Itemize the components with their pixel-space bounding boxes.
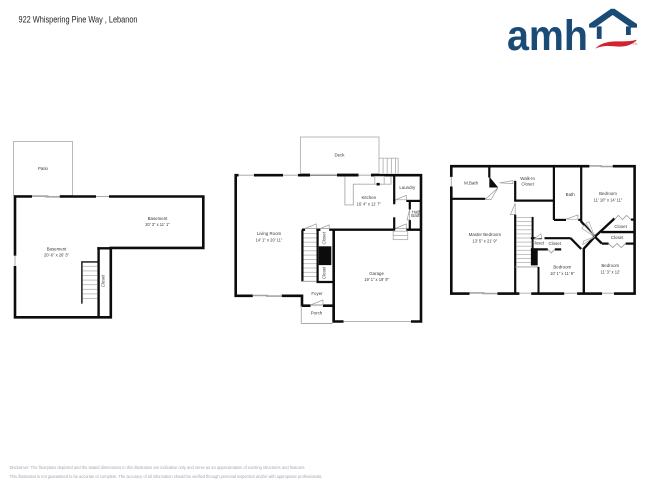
- svg-text:19' 1" x 19' 9": 19' 1" x 19' 9": [364, 277, 389, 282]
- svg-text:Closet: Closet: [614, 224, 627, 229]
- svg-text:Basement: Basement: [47, 247, 68, 252]
- svg-text:Master Bedroom: Master Bedroom: [469, 232, 502, 237]
- svg-text:14' 1" x 20' 11": 14' 1" x 20' 11": [256, 237, 283, 242]
- svg-text:Walk-In: Walk-In: [520, 176, 535, 181]
- svg-text:This illustration is not guara: This illustration is not guaranteed to b…: [10, 474, 323, 479]
- svg-text:Bath: Bath: [566, 192, 576, 197]
- svg-text:Basement: Basement: [148, 216, 169, 221]
- svg-text:Porch: Porch: [311, 311, 323, 316]
- svg-text:Laundry: Laundry: [399, 185, 416, 190]
- svg-text:Closet: Closet: [321, 231, 326, 244]
- svg-text:Disclaimer: The floorplans dep: Disclaimer: The floorplans depicted and …: [10, 465, 306, 470]
- svg-text:Closet: Closet: [548, 241, 561, 246]
- svg-text:20' 3" x 11' 1": 20' 3" x 11' 1": [145, 222, 170, 227]
- svg-text:Closet: Closet: [101, 274, 106, 287]
- svg-text:Living Room: Living Room: [257, 231, 282, 236]
- svg-text:Closet: Closet: [532, 241, 545, 246]
- svg-text:Bedroom: Bedroom: [599, 191, 617, 196]
- svg-text:Kitchen: Kitchen: [361, 195, 376, 200]
- svg-text:Closet: Closet: [521, 182, 534, 187]
- svg-text:Deck: Deck: [334, 153, 345, 158]
- svg-text:Bedroom: Bedroom: [601, 263, 619, 268]
- svg-text:M.Bath: M.Bath: [464, 181, 478, 186]
- svg-text:20'-6" x 26' 3": 20'-6" x 26' 3": [44, 253, 69, 258]
- svg-text:922 Whispering Pine Way , Leba: 922 Whispering Pine Way , Lebanon: [19, 14, 138, 24]
- svg-text:11' 3" x 12': 11' 3" x 12': [601, 269, 621, 274]
- svg-text:Bath: Bath: [411, 213, 421, 218]
- svg-text:Bedroom: Bedroom: [553, 265, 571, 270]
- svg-text:11' 10" x 14' 11": 11' 10" x 14' 11": [594, 197, 623, 202]
- svg-text:10' 1" x 11' 9": 10' 1" x 11' 9": [550, 271, 575, 276]
- svg-text:amh: amh: [507, 13, 588, 60]
- svg-text:Closet: Closet: [611, 235, 624, 240]
- svg-text:Closet: Closet: [321, 266, 326, 279]
- svg-text:Patio: Patio: [38, 166, 49, 171]
- svg-text:TM: TM: [633, 42, 638, 46]
- svg-text:Foyer: Foyer: [311, 291, 323, 296]
- svg-text:16' 4" x 11' 7": 16' 4" x 11' 7": [357, 201, 382, 206]
- svg-text:Garage: Garage: [369, 271, 384, 276]
- svg-text:13' 5" x 21' 9": 13' 5" x 21' 9": [472, 238, 497, 243]
